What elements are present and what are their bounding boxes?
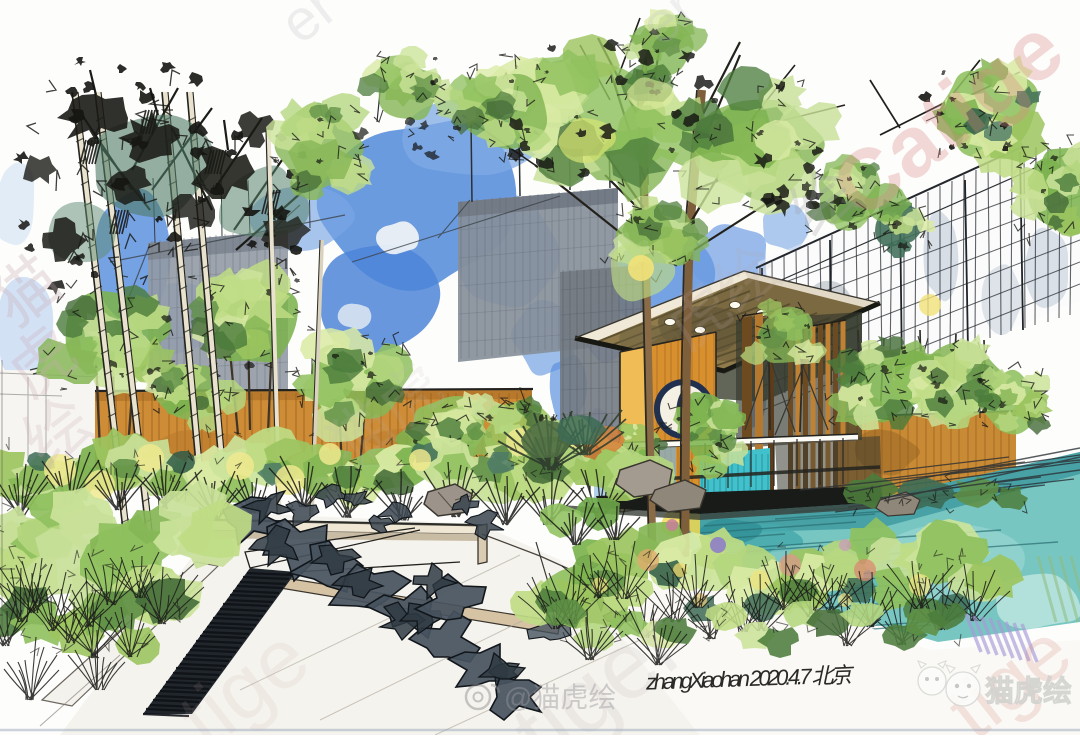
svg-text:@猫虎绘: @猫虎绘	[504, 682, 616, 713]
svg-text:猫虎绘: 猫虎绘	[985, 674, 1072, 708]
